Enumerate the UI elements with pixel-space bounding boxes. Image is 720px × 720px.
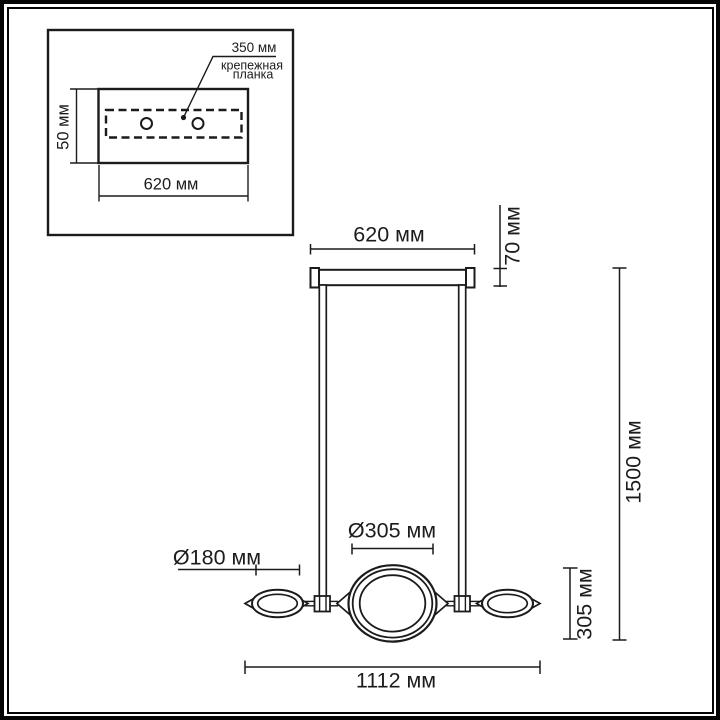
canopy-end-cap-left <box>311 268 320 288</box>
canopy-end-cap-right <box>466 268 475 288</box>
ceiling-plate-outline <box>99 89 249 163</box>
center-ring-outer <box>349 565 437 641</box>
ring-diameter-label: Ø305 мм <box>348 519 436 542</box>
clamp-block-right <box>455 596 471 612</box>
clamp-block-left <box>315 596 331 612</box>
suspension-rod-right <box>459 285 466 597</box>
overall-width-label: 1112 мм <box>356 669 436 692</box>
inset-bracket-name-line2: планка <box>233 68 274 81</box>
canopy-height-label: 70 мм <box>502 206 525 265</box>
canopy-width-label: 620 мм <box>353 224 424 247</box>
dimension-drawing-canvas: 350 мм крепежная планка 50 мм 620 мм 620… <box>0 0 720 720</box>
side-diameter-label: Ø180 мм <box>173 546 261 569</box>
overall-height-label: 1500 мм <box>622 420 645 503</box>
inset-plate-width-label: 620 мм <box>144 176 199 193</box>
body-height-label: 305 мм <box>573 568 596 639</box>
inset-bracket-length-label: 350 мм <box>232 40 277 54</box>
suspension-rod-left <box>319 285 326 597</box>
canopy-bar <box>319 270 466 285</box>
inset-plate-height-label: 50 мм <box>55 104 72 150</box>
drawing-geometry <box>0 0 720 720</box>
